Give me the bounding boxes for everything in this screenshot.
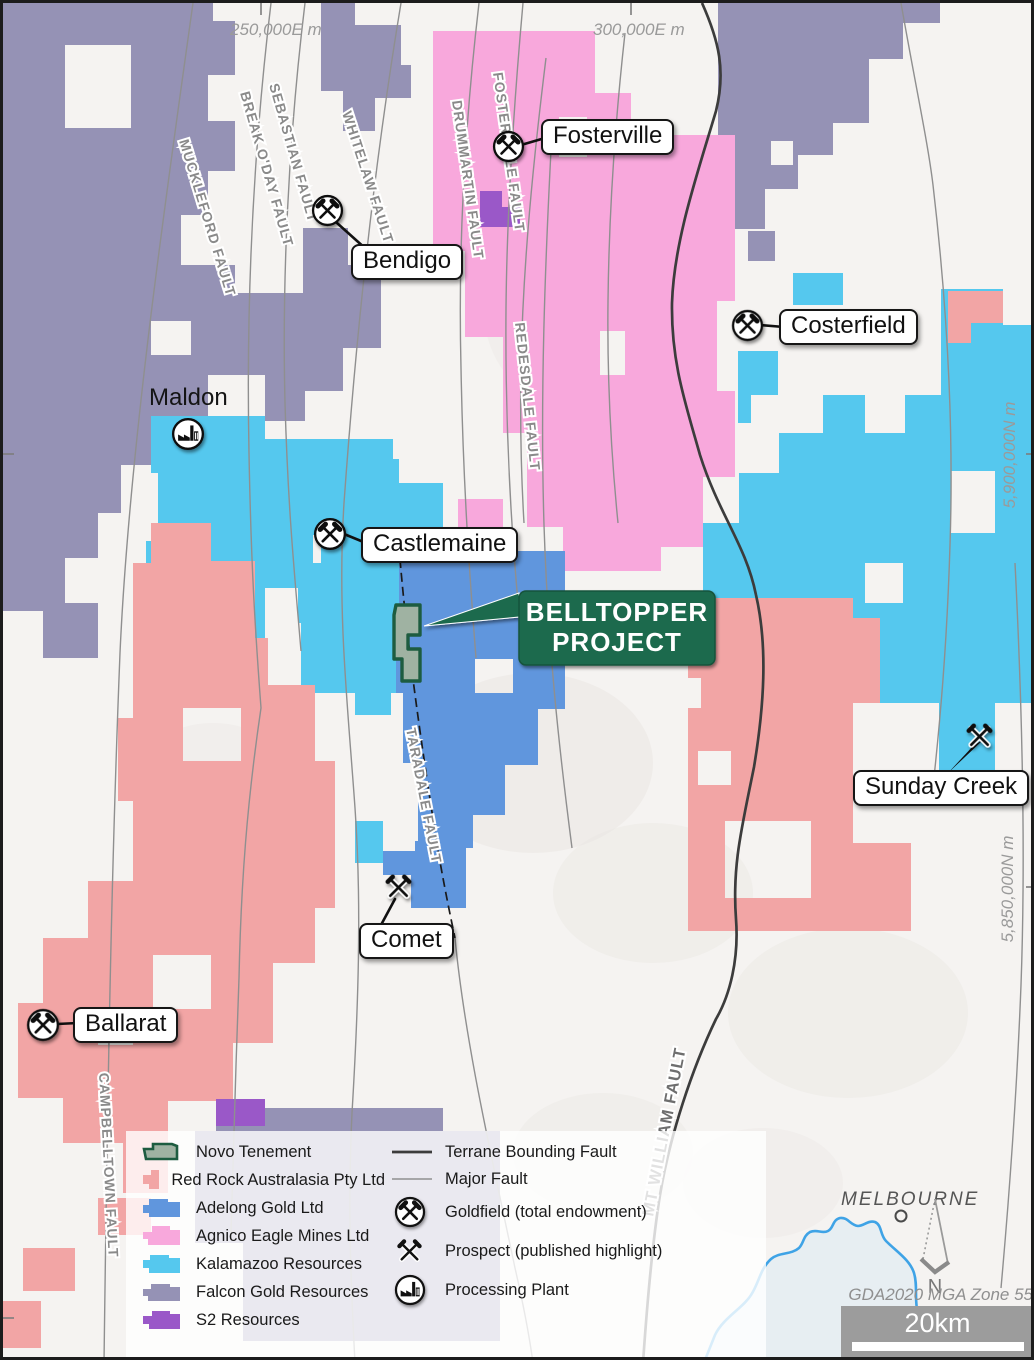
legend-line-label: Major Fault	[445, 1170, 528, 1189]
goldfield-icon-bendigo	[313, 196, 342, 225]
legend-symbol-plant: Processing Plant	[391, 1273, 761, 1307]
red-rock-swatch	[140, 1168, 159, 1192]
north-arrow-icon	[909, 1193, 961, 1277]
legend-line-major: Major Fault	[391, 1168, 761, 1190]
legend-item-s2: S2 Resources	[140, 1309, 385, 1331]
legend-item-label: Falcon Gold Resources	[196, 1283, 368, 1302]
place-label-fosterville: Fosterville	[541, 119, 674, 155]
legend-item-novo: Novo Tenement	[140, 1141, 385, 1163]
prospect-icon	[391, 1234, 433, 1268]
legend-symbol-prospect: Prospect (published highlight)	[391, 1234, 761, 1268]
scale-bar-label: 20km	[904, 1308, 970, 1339]
goldfield-icon-costerfield	[733, 311, 762, 340]
legend-item-adelong: Adelong Gold Ltd	[140, 1197, 385, 1219]
processing-plant-icon-maldon	[173, 419, 203, 449]
goldfield-icon-ballarat	[28, 1010, 58, 1040]
compass: N	[909, 1193, 961, 1297]
easting-label-300000: 300,000E m	[593, 20, 685, 39]
adelong-swatch	[140, 1196, 184, 1220]
legend-tenement-column: Novo Tenement Red Rock Australasia Pty L…	[140, 1141, 385, 1360]
datum-label: GDA2020 MGA Zone 55	[833, 1285, 1033, 1305]
falcon-swatch	[140, 1280, 184, 1304]
legend-item-label: Adelong Gold Ltd	[196, 1199, 324, 1218]
terrane-fault-line-sample	[391, 1147, 433, 1157]
place-label-bendigo: Bendigo	[351, 244, 463, 280]
legend-item-label: S2 Resources	[196, 1311, 300, 1330]
scale-bar-rule	[852, 1342, 1024, 1351]
region-falcon-top-right-2	[748, 231, 775, 261]
belltopper-location-map: MUCKLEFORD FAULT BREAK O'DAY FAULT SEBAS…	[0, 0, 1034, 1360]
goldfield-icon	[391, 1194, 433, 1230]
place-label-sunday-creek: Sunday Creek	[853, 770, 1029, 806]
place-label-comet: Comet	[359, 923, 454, 959]
legend-symbol-label: Goldfield (total endowment)	[445, 1203, 647, 1222]
s2-swatch	[140, 1308, 184, 1332]
legend-item-agnico: Agnico Eagle Mines Ltd	[140, 1225, 385, 1247]
legend-item-kalamazoo: Kalamazoo Resources	[140, 1253, 385, 1275]
easting-label-250000: 250,000E m	[229, 20, 322, 39]
place-label-ballarat: Ballarat	[73, 1007, 178, 1043]
processing-plant-icon	[391, 1272, 433, 1308]
agnico-swatch	[140, 1224, 184, 1248]
belltopper-label-line2: PROJECT	[552, 627, 682, 657]
novo-tenement-swatch	[140, 1140, 184, 1164]
legend-item-label: Red Rock Australasia Pty Ltd	[171, 1171, 385, 1190]
goldfield-icon-fosterville	[494, 132, 523, 161]
region-kalamazoo-right-2	[793, 273, 843, 305]
legend-item-red-rock: Red Rock Australasia Pty Ltd	[140, 1169, 385, 1191]
kalamazoo-swatch	[140, 1252, 184, 1276]
legend-symbol-column: Terrane Bounding Fault Major Fault Goldf…	[385, 1141, 761, 1360]
legend-item-falcon: Falcon Gold Resources	[140, 1281, 385, 1303]
legend-item-label: Agnico Eagle Mines Ltd	[196, 1227, 369, 1246]
legend-symbol-label: Processing Plant	[445, 1281, 569, 1300]
legend-item-label: Novo Tenement	[196, 1143, 311, 1162]
scale-bar: 20km	[841, 1306, 1034, 1360]
northing-label-5850000: 5,850,000N m	[998, 836, 1017, 943]
region-s2-legend-area	[216, 1099, 265, 1126]
legend-panel: Novo Tenement Red Rock Australasia Pty L…	[126, 1131, 766, 1360]
legend-item-label: Kalamazoo Resources	[196, 1255, 362, 1274]
major-fault-line-sample	[391, 1174, 433, 1184]
melbourne-marker	[896, 1211, 907, 1222]
legend-line-label: Terrane Bounding Fault	[445, 1143, 617, 1162]
belltopper-label-line1: BELLTOPPER	[526, 597, 708, 627]
region-kalamazoo-comet	[355, 821, 383, 863]
legend-symbol-goldfield: Goldfield (total endowment)	[391, 1195, 761, 1229]
goldfield-icon-castlemaine	[315, 519, 345, 549]
northing-label-5900000: 5,900,000N m	[1000, 402, 1019, 509]
legend-symbol-label: Prospect (published highlight)	[445, 1242, 662, 1261]
place-label-costerfield: Costerfield	[779, 309, 918, 345]
legend-line-terrane: Terrane Bounding Fault	[391, 1141, 761, 1163]
place-label-castlemaine: Castlemaine	[361, 527, 518, 563]
place-label-maldon: Maldon	[149, 384, 228, 412]
